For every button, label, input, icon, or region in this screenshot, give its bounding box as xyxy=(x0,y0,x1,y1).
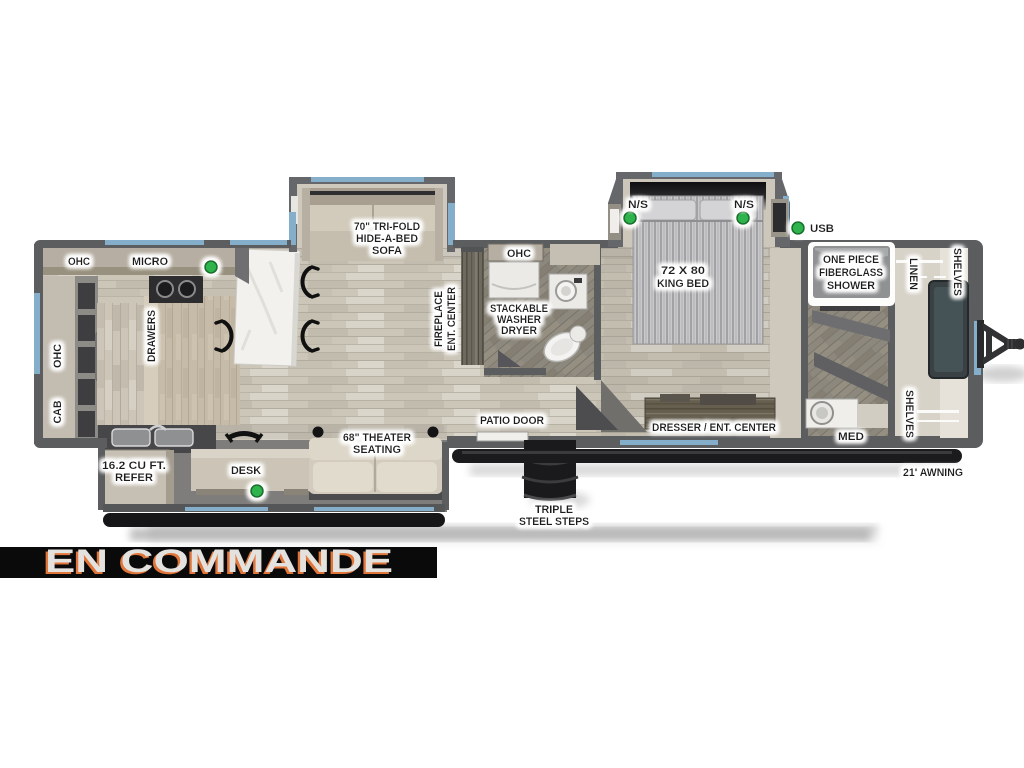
svg-text:DRESSER / ENT. CENTER: DRESSER / ENT. CENTER xyxy=(652,422,776,434)
svg-text:LINEN: LINEN xyxy=(907,258,919,290)
svg-text:CAB: CAB xyxy=(52,400,64,423)
svg-text:N/S: N/S xyxy=(628,199,648,211)
svg-text:KING BED: KING BED xyxy=(657,278,709,290)
svg-text:SEATING: SEATING xyxy=(353,444,401,456)
svg-text:REFER: REFER xyxy=(115,472,153,484)
svg-text:DESK: DESK xyxy=(231,465,261,477)
svg-text:N/S: N/S xyxy=(734,199,754,211)
svg-text:STEEL STEPS: STEEL STEPS xyxy=(519,516,589,528)
svg-text:HIDE-A-BED: HIDE-A-BED xyxy=(356,233,418,245)
svg-text:DRYER: DRYER xyxy=(501,325,537,337)
svg-text:MICRO: MICRO xyxy=(132,256,168,268)
svg-text:ENT. CENTER: ENT. CENTER xyxy=(446,287,458,351)
svg-text:EN COMMANDE: EN COMMANDE xyxy=(45,543,393,579)
svg-text:72 X 80: 72 X 80 xyxy=(661,265,705,277)
svg-text:OHC: OHC xyxy=(68,256,90,268)
svg-text:SHELVES: SHELVES xyxy=(951,248,963,296)
svg-text:68" THEATER: 68" THEATER xyxy=(343,432,411,444)
svg-text:FIBERGLASS: FIBERGLASS xyxy=(819,267,883,279)
svg-text:21' AWNING: 21' AWNING xyxy=(903,467,963,479)
svg-text:FIREPLACE: FIREPLACE xyxy=(433,291,445,347)
svg-text:ONE PIECE: ONE PIECE xyxy=(823,254,879,266)
svg-text:MED: MED xyxy=(838,431,864,443)
svg-text:USB: USB xyxy=(810,223,834,235)
svg-text:OHC: OHC xyxy=(507,248,531,260)
svg-text:16.2 CU FT.: 16.2 CU FT. xyxy=(102,460,166,472)
svg-text:70" TRI-FOLD: 70" TRI-FOLD xyxy=(354,221,420,233)
svg-text:SHELVES: SHELVES xyxy=(903,390,915,438)
svg-text:SHOWER: SHOWER xyxy=(827,280,875,292)
svg-text:SOFA: SOFA xyxy=(372,245,402,257)
svg-text:DRAWERS: DRAWERS xyxy=(146,310,158,362)
svg-text:PATIO DOOR: PATIO DOOR xyxy=(480,415,544,427)
svg-text:OHC: OHC xyxy=(52,344,64,368)
svg-text:TRIPLE: TRIPLE xyxy=(535,504,573,516)
